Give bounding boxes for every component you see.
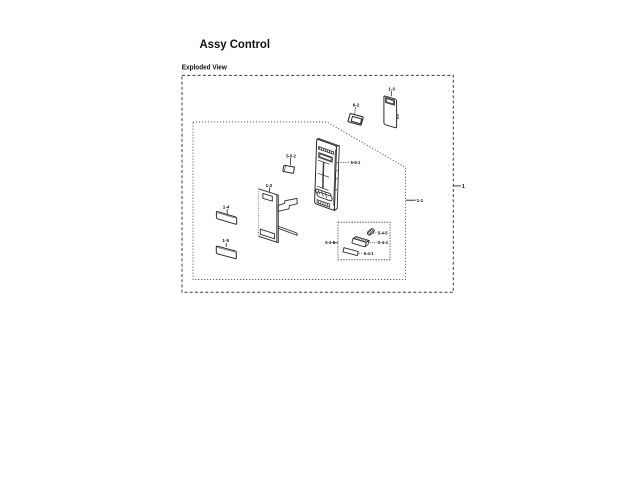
svg-text:1-5: 1-5: [222, 238, 229, 243]
svg-text:5-4-5: 5-4-5: [378, 230, 388, 235]
svg-text:1-1: 1-1: [417, 198, 424, 203]
svg-text:1-4: 1-4: [223, 205, 230, 210]
svg-text:1: 1: [462, 184, 465, 190]
svg-text:1-3: 1-3: [388, 87, 395, 92]
svg-text:1-2: 1-2: [266, 183, 273, 188]
svg-text:Exploded View: Exploded View: [182, 63, 227, 72]
svg-text:6-2: 6-2: [353, 103, 360, 108]
svg-text:Assy Control: Assy Control: [200, 37, 271, 51]
svg-text:5-5-2: 5-5-2: [286, 153, 296, 158]
svg-text:5-4-1: 5-4-1: [364, 251, 374, 256]
svg-text:5-4-4: 5-4-4: [378, 240, 388, 245]
svg-text:5-5-1: 5-5-1: [351, 160, 361, 165]
